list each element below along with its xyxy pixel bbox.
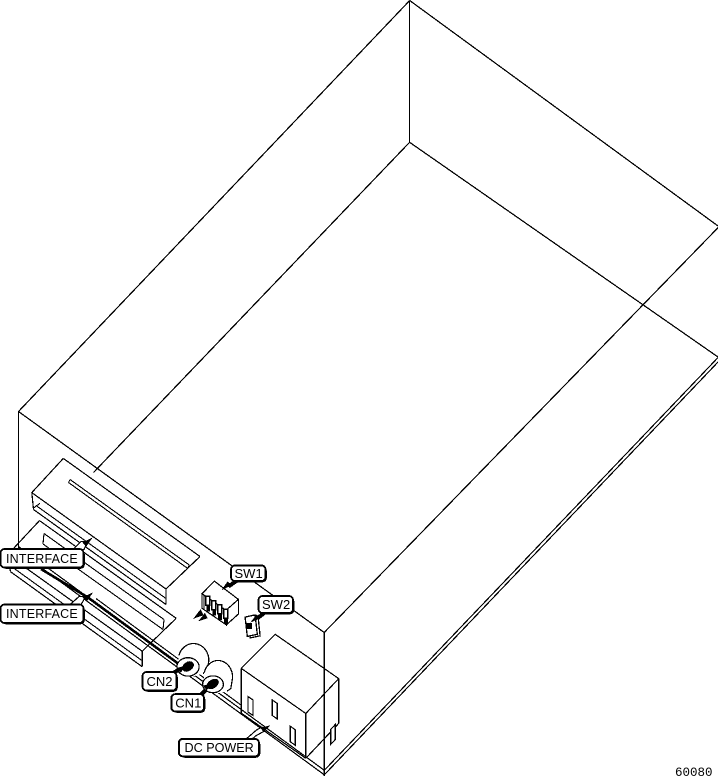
svg-text:SW2: SW2 (262, 597, 290, 612)
svg-text:SW1: SW1 (235, 566, 263, 581)
svg-text:DC POWER: DC POWER (185, 741, 254, 755)
svg-text:CN2: CN2 (147, 674, 173, 689)
svg-text:CN1: CN1 (175, 696, 201, 711)
svg-text:60080: 60080 (675, 766, 713, 780)
svg-text:INTERFACE: INTERFACE (6, 552, 78, 566)
svg-text:INTERFACE: INTERFACE (6, 607, 78, 621)
